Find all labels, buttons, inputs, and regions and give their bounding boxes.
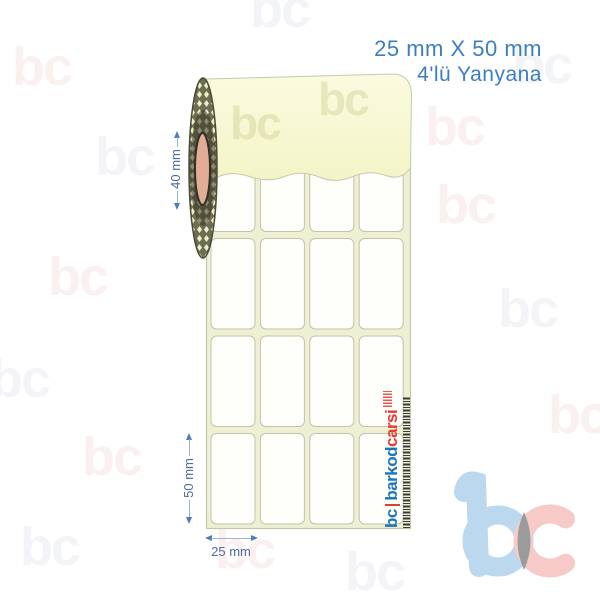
logo-name-red: carsi	[382, 410, 402, 447]
label-width-dimension-label: 25 mm	[201, 544, 261, 560]
liner-brand-logo: bc barkod carsi	[383, 388, 413, 528]
label	[260, 239, 304, 330]
label	[211, 434, 255, 525]
logo-name-blue: barkod	[382, 447, 402, 501]
product-title: 25 mm X 50 mm 4'lü Yanyana	[374, 36, 542, 88]
logo-bc-mark: bc	[382, 509, 402, 528]
brand-watermark-large	[438, 470, 600, 600]
barcode-strip-icon	[403, 396, 410, 528]
label	[310, 239, 354, 330]
arrow-down-icon	[174, 203, 180, 210]
label	[260, 434, 304, 525]
liner-brand-logo-text: bc barkod carsi	[383, 388, 401, 528]
layout-title: 4'lü Yanyana	[374, 62, 542, 88]
dimension-line	[211, 538, 251, 539]
label	[359, 239, 403, 330]
roll-body	[207, 74, 412, 180]
arrow-down-icon	[186, 517, 192, 524]
label	[310, 336, 354, 427]
size-title: 25 mm X 50 mm	[374, 36, 542, 62]
product-image: bcbcbcbcbcbcbcbcbcbcbcbcbcbc bc bc	[0, 0, 600, 600]
label	[260, 336, 304, 427]
label	[211, 336, 255, 427]
label	[211, 239, 255, 330]
core-dimension-label: 40 mm	[168, 147, 184, 191]
roll-core	[195, 133, 210, 205]
logo-fineprint	[383, 391, 392, 407]
label	[310, 434, 354, 525]
label-height-dimension-label: 50 mm	[181, 456, 197, 500]
arrow-right-icon	[251, 535, 258, 541]
logo-divider	[385, 504, 400, 507]
